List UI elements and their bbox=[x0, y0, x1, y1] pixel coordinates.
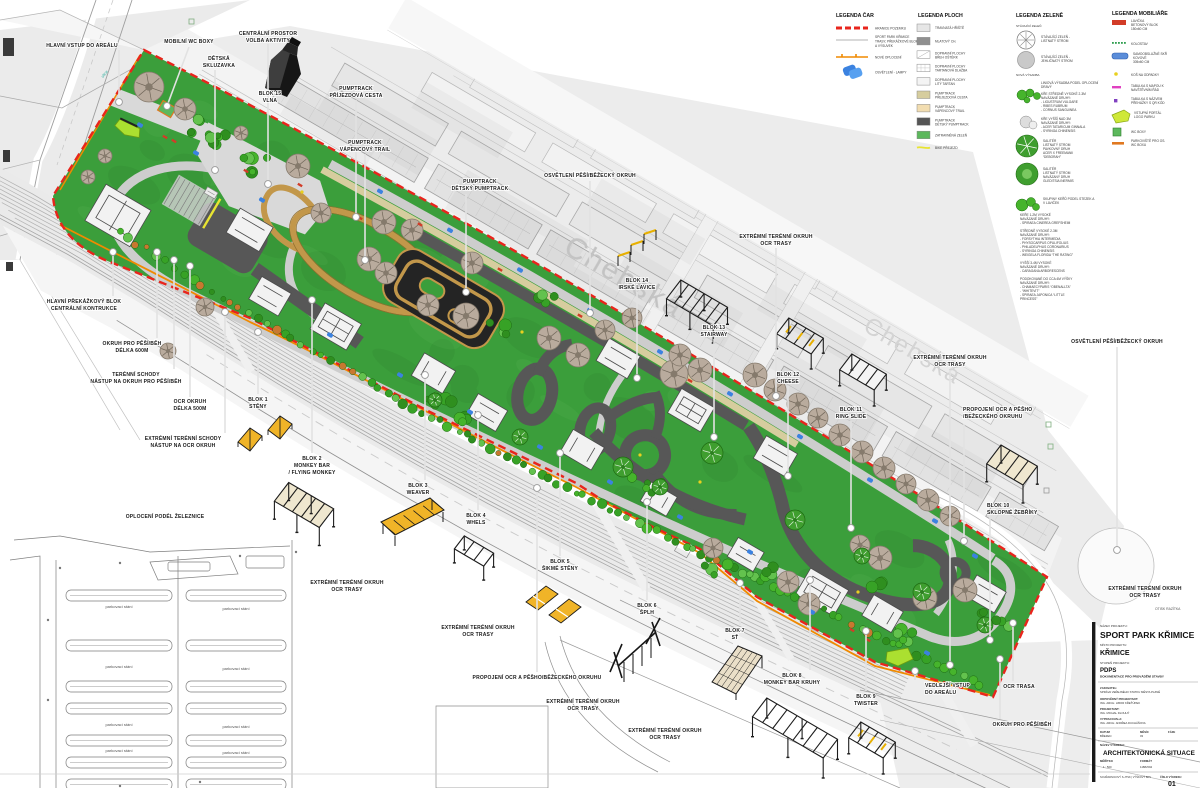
svg-text:BLOK 8: BLOK 8 bbox=[782, 673, 802, 679]
svg-text:SŤ: SŤ bbox=[732, 633, 739, 641]
svg-text:BLOK 11: BLOK 11 bbox=[840, 407, 862, 413]
svg-text:BLOK 1: BLOK 1 bbox=[248, 397, 268, 403]
svg-text:PDPS: PDPS bbox=[1100, 668, 1116, 674]
svg-text:BŘEH OŠTĚRK: BŘEH OŠTĚRK bbox=[935, 54, 959, 59]
svg-text:BLOK 10: BLOK 10 bbox=[987, 503, 1010, 509]
svg-text:MONKEY BAR KRUHY: MONKEY BAR KRUHY bbox=[764, 680, 821, 686]
svg-text:PUMPTRACK: PUMPTRACK bbox=[348, 140, 382, 146]
svg-text:BLOK 15: BLOK 15 bbox=[259, 91, 282, 97]
svg-text:MĚŘÍTKO: MĚŘÍTKO bbox=[1100, 758, 1114, 763]
svg-text:- CORNUS SANGUINEA: - CORNUS SANGUINEA bbox=[1041, 108, 1077, 112]
svg-text:NOVÉ OPLOCENÍ: NOVÉ OPLOCENÍ bbox=[875, 55, 902, 60]
svg-text:STÁVAJÍCÍ ZELEŇ: STÁVAJÍCÍ ZELEŇ bbox=[1016, 23, 1041, 28]
svg-text:BLOK 4: BLOK 4 bbox=[466, 513, 486, 519]
svg-text:NÁZEV VÝKRESU:: NÁZEV VÝKRESU: bbox=[1100, 742, 1125, 747]
svg-text:ING. MICHAL DLOUHÝ: ING. MICHAL DLOUHÝ bbox=[1100, 711, 1130, 715]
svg-text:parkovací stání: parkovací stání bbox=[105, 722, 133, 727]
svg-text:SPRÁVA VEŘEJNÉHO STATKU MĚSTA: SPRÁVA VEŘEJNÉHO STATKU MĚSTA PLZNĚ bbox=[1100, 689, 1160, 694]
svg-text:OSVĚTLENÍ PĚŠÍ/BĚŽECKÝ OKRUH: OSVĚTLENÍ PĚŠÍ/BĚŽECKÝ OKRUH bbox=[1071, 337, 1163, 345]
svg-text:PRINCESS”: PRINCESS” bbox=[1020, 297, 1037, 301]
svg-text:parkovací stání: parkovací stání bbox=[105, 604, 133, 609]
svg-text:OCR TRASY: OCR TRASY bbox=[760, 241, 792, 247]
svg-text:parkovací stání: parkovací stání bbox=[105, 748, 133, 753]
svg-text:EXTRÉMNÍ TERÉNNÍ OKRUH: EXTRÉMNÍ TERÉNNÍ OKRUH bbox=[441, 623, 514, 631]
svg-text:LOGO PARKU: LOGO PARKU bbox=[1134, 115, 1156, 119]
svg-text:OTISK RAZÍTKA: OTISK RAZÍTKA bbox=[1155, 607, 1181, 611]
svg-text:PŘEJEZDOVÁ CESTA: PŘEJEZDOVÁ CESTA bbox=[935, 95, 968, 100]
svg-text:BLOK 14: BLOK 14 bbox=[626, 278, 649, 284]
svg-text:KOLOSTAV: KOLOSTAV bbox=[1131, 42, 1149, 46]
svg-text:EXTRÉMNÍ TERÉNNÍ OKRUH: EXTRÉMNÍ TERÉNNÍ OKRUH bbox=[739, 232, 812, 240]
svg-text:BLOK 2: BLOK 2 bbox=[302, 456, 322, 462]
svg-text:SKLOPNÉ ŽEBŘÍKY: SKLOPNÉ ŽEBŘÍKY bbox=[987, 508, 1038, 516]
svg-text:EXTRÉMNÍ TERÉNNÍ OKRUH: EXTRÉMNÍ TERÉNNÍ OKRUH bbox=[310, 578, 383, 586]
svg-text:- SYRINGA CHINENSIS: - SYRINGA CHINENSIS bbox=[1041, 129, 1075, 133]
svg-text:OPLOCENÍ PODÉL ŽELEZNICE: OPLOCENÍ PODÉL ŽELEZNICE bbox=[126, 512, 205, 520]
svg-text:SPORT PARK KŘIMICE: SPORT PARK KŘIMICE bbox=[875, 34, 909, 39]
svg-text:PŘÍJEZDOVÁ CESTA: PŘÍJEZDOVÁ CESTA bbox=[329, 91, 382, 99]
svg-text:“DEBORAH”: “DEBORAH” bbox=[1043, 155, 1061, 159]
svg-text:PŘEHÁŽKY S QR KÓD: PŘEHÁŽKY S QR KÓD bbox=[1131, 100, 1165, 105]
svg-text:BLOK 7: BLOK 7 bbox=[725, 628, 745, 634]
svg-text:MONKEY BAR: MONKEY BAR bbox=[294, 463, 330, 469]
svg-text:MÍSTO PROJEKTU:: MÍSTO PROJEKTU: bbox=[1100, 643, 1127, 647]
svg-text:EXTRÉMNÍ TERÉNNÍ OKRUH: EXTRÉMNÍ TERÉNNÍ OKRUH bbox=[546, 697, 619, 705]
svg-text:DĚTSKÁ: DĚTSKÁ bbox=[208, 54, 230, 62]
svg-text:parkovací stání: parkovací stání bbox=[222, 750, 250, 755]
svg-text:OCR TRASY: OCR TRASY bbox=[1129, 593, 1161, 599]
svg-text:PROPOJENÍ OCR A PĚŠHO/BĚŽECKÉH: PROPOJENÍ OCR A PĚŠHO/BĚŽECKÉHO OKRUHU bbox=[473, 673, 602, 681]
svg-text:ING. ARCH. ANDŘEA DUCHÁŇOVA: ING. ARCH. ANDŘEA DUCHÁŇOVA bbox=[1100, 720, 1146, 725]
svg-text:OCR TRASY: OCR TRASY bbox=[934, 362, 966, 368]
svg-text:BŘEZEN: BŘEZEN bbox=[1100, 733, 1111, 738]
svg-text:OCR TRASY: OCR TRASY bbox=[567, 706, 599, 712]
svg-text:BLOK 5: BLOK 5 bbox=[550, 559, 570, 565]
svg-text:1188x594: 1188x594 bbox=[1140, 765, 1153, 769]
svg-text:KOŠ NA ODPADKY: KOŠ NA ODPADKY bbox=[1131, 72, 1160, 77]
svg-text:TRAVNATÁ HŘIŠTĚ: TRAVNATÁ HŘIŠTĚ bbox=[935, 25, 964, 30]
svg-text:VÁPENCOVÝ TRAIL: VÁPENCOVÝ TRAIL bbox=[935, 109, 965, 113]
svg-text:NAVŠTĚVNÍM ŘÁD: NAVŠTĚVNÍM ŘÁD bbox=[1131, 87, 1160, 92]
svg-text:MOBILNÍ WC BOXY: MOBILNÍ WC BOXY bbox=[164, 37, 214, 45]
svg-text:CENTRÁLNÍ KONTRUKCE: CENTRÁLNÍ KONTRUKCE bbox=[51, 304, 117, 312]
svg-text:ZATRAVNĚNÁ ZELEŇ: ZATRAVNĚNÁ ZELEŇ bbox=[935, 132, 968, 137]
svg-text:FORMÁT: FORMÁT bbox=[1140, 758, 1152, 763]
svg-text:CENTRÁLNÍ PROSTOR: CENTRÁLNÍ PROSTOR bbox=[239, 29, 297, 37]
svg-text:DO AREÁLU: DO AREÁLU bbox=[925, 689, 957, 696]
svg-text:VOLBA AKTIVITY: VOLBA AKTIVITY bbox=[246, 38, 291, 44]
svg-text:CHEESE: CHEESE bbox=[777, 379, 799, 385]
svg-text:PUMPTRACK: PUMPTRACK bbox=[463, 179, 497, 185]
svg-text:DRAVÝ: DRAVÝ bbox=[1041, 85, 1053, 89]
svg-text:PROPOJENÍ OCR A PĚŠHO: PROPOJENÍ OCR A PĚŠHO bbox=[963, 405, 1032, 413]
svg-text:V LAVIČEK: V LAVIČEK bbox=[1043, 200, 1060, 205]
svg-text:NÁSTUP NA OCR OKRUH: NÁSTUP NA OCR OKRUH bbox=[151, 442, 216, 449]
svg-text:ING. ARCH. LIBOR KŘEŤÚPEK: ING. ARCH. LIBOR KŘEŤÚPEK bbox=[1100, 700, 1140, 705]
svg-text:PUMPTRACK: PUMPTRACK bbox=[339, 86, 373, 92]
svg-text:NÁZEV PROJEKTU:: NÁZEV PROJEKTU: bbox=[1100, 624, 1128, 628]
svg-text:NOVÁ VÝSADBA: NOVÁ VÝSADBA bbox=[1016, 73, 1040, 77]
svg-text:STĚNY: STĚNY bbox=[249, 402, 267, 410]
svg-text:/ FLYING MONKEY: / FLYING MONKEY bbox=[289, 470, 336, 476]
svg-text:305x60 CM: 305x60 CM bbox=[1133, 60, 1150, 64]
svg-text:MLATOVÝ CH.: MLATOVÝ CH. bbox=[935, 40, 956, 44]
svg-text:WC BOXU: WC BOXU bbox=[1131, 143, 1147, 147]
svg-text:150x60 CM: 150x60 CM bbox=[1131, 27, 1148, 31]
svg-text:TRASY, PŘEKÁŽKOVÉ BLOKY: TRASY, PŘEKÁŽKOVÉ BLOKY bbox=[875, 39, 921, 44]
svg-text:LEGENDA ZELENĚ: LEGENDA ZELENĚ bbox=[1016, 11, 1064, 19]
svg-text:DOKUMENTACE PRO PROVÁDĚNÍ STAV: DOKUMENTACE PRO PROVÁDĚNÍ STAVBY bbox=[1100, 674, 1165, 679]
svg-text:OKRUH PRO PĚŠÍ/BĚH: OKRUH PRO PĚŠÍ/BĚH bbox=[103, 339, 162, 347]
svg-text:BLOK 12: BLOK 12 bbox=[777, 372, 800, 378]
svg-text:OCR TRASY: OCR TRASY bbox=[331, 587, 363, 593]
svg-text:DĚTSKÝ PUMPTRACK: DĚTSKÝ PUMPTRACK bbox=[935, 121, 970, 126]
svg-text:TARTANOVÁ DLAŽBA: TARTANOVÁ DLAŽBA bbox=[935, 68, 968, 73]
svg-text:TERÉNNÍ SCHODY: TERÉNNÍ SCHODY bbox=[112, 370, 160, 378]
svg-text:parkovací stání: parkovací stání bbox=[222, 666, 250, 671]
svg-text:VLNA: VLNA bbox=[263, 98, 278, 104]
svg-text:HLAVNÍ PŘEKÁŽKOVÝ BLOK: HLAVNÍ PŘEKÁŽKOVÝ BLOK bbox=[47, 297, 121, 305]
svg-text:VÁPENCOVÝ TRAIL: VÁPENCOVÝ TRAIL bbox=[340, 146, 391, 153]
svg-text:WEAVER: WEAVER bbox=[407, 490, 430, 496]
svg-text:EXTRÉMNÍ TERÉNNÍ OKRUH: EXTRÉMNÍ TERÉNNÍ OKRUH bbox=[628, 726, 701, 734]
svg-text:WC BOXY: WC BOXY bbox=[1131, 130, 1147, 134]
svg-text:LISTNATÝ STROM: LISTNATÝ STROM bbox=[1041, 39, 1069, 43]
svg-text:DĚTSKÝ PUMPTRACK: DĚTSKÝ PUMPTRACK bbox=[452, 184, 509, 192]
svg-text:STAIRWAY: STAIRWAY bbox=[700, 332, 728, 338]
svg-text:parkovací stání: parkovací stání bbox=[222, 724, 250, 729]
svg-text:NÁSTUP NA OKRUH PRO PĚŠÍ/BĚH: NÁSTUP NA OKRUH PRO PĚŠÍ/BĚH bbox=[90, 377, 181, 385]
svg-text:1 : 500: 1 : 500 bbox=[1103, 765, 1112, 769]
svg-text:OCR TRASY: OCR TRASY bbox=[649, 735, 681, 741]
svg-text:parkovací stání: parkovací stání bbox=[105, 664, 133, 669]
svg-text:HRANICE POZEMKU: HRANICE POZEMKU bbox=[875, 27, 907, 31]
svg-text:EXTRÉMNÍ TERÉNNÍ SCHODY: EXTRÉMNÍ TERÉNNÍ SCHODY bbox=[145, 434, 222, 442]
svg-text:SPORT PARK KŘIMICE: SPORT PARK KŘIMICE bbox=[1100, 629, 1195, 640]
svg-text:- SPIRAEA CINEREA GREFSHEIM: - SPIRAEA CINEREA GREFSHEIM bbox=[1020, 221, 1071, 225]
svg-text:TWISTER: TWISTER bbox=[854, 701, 878, 707]
svg-text:LEGENDA PLOCH: LEGENDA PLOCH bbox=[918, 13, 963, 19]
svg-text:SKLUZAVKA: SKLUZAVKA bbox=[203, 63, 235, 69]
svg-text:EXTRÉMNÍ TERÉNNÍ OKRUH: EXTRÉMNÍ TERÉNNÍ OKRUH bbox=[1108, 584, 1181, 592]
svg-text:OCR TRASY: OCR TRASY bbox=[462, 632, 494, 638]
svg-text:OSVĚTLENÍ - LAMPY: OSVĚTLENÍ - LAMPY bbox=[875, 70, 907, 75]
svg-text:GLEDITSIA INERMIS: GLEDITSIA INERMIS bbox=[1043, 179, 1074, 183]
svg-text:ARCHITEKTONICKÁ SITUACE: ARCHITEKTONICKÁ SITUACE bbox=[1103, 748, 1196, 757]
svg-text:OKRUH PRO PĚŠÍ/BĚH: OKRUH PRO PĚŠÍ/BĚH bbox=[993, 720, 1052, 728]
svg-text:RING SLIDE: RING SLIDE bbox=[836, 414, 867, 420]
svg-text:WHELS: WHELS bbox=[466, 520, 486, 526]
svg-text:DÉLKA 500M: DÉLKA 500M bbox=[174, 404, 207, 412]
svg-text:KŘIMICE: KŘIMICE bbox=[1100, 648, 1130, 657]
svg-text:HLAVNÍ VSTUP DO AREÁLU: HLAVNÍ VSTUP DO AREÁLU bbox=[46, 41, 118, 49]
svg-text:03: 03 bbox=[1140, 734, 1144, 738]
svg-text:OSVĚTLENÍ PĚŠÍ/BĚŽECKÝ OKRUH: OSVĚTLENÍ PĚŠÍ/BĚŽECKÝ OKRUH bbox=[544, 171, 636, 179]
svg-text:BLOK 6: BLOK 6 bbox=[637, 603, 657, 609]
svg-text:VEDLEJŠÍ VSTUP: VEDLEJŠÍ VSTUP bbox=[925, 681, 970, 689]
svg-text:JEHLIČNATÝ STROM: JEHLIČNATÝ STROM bbox=[1041, 58, 1073, 63]
svg-text:IRSKÉ LAVICE: IRSKÉ LAVICE bbox=[618, 283, 655, 291]
svg-text:STUPEŇ PROJEKTU:: STUPEŇ PROJEKTU: bbox=[1100, 660, 1130, 665]
svg-text:LEGENDA MOBILIÁŘE: LEGENDA MOBILIÁŘE bbox=[1112, 9, 1168, 17]
svg-text:- CARAGANA ARBORESCENS: - CARAGANA ARBORESCENS bbox=[1020, 269, 1065, 273]
svg-text:A VÝSUVEK: A VÝSUVEK bbox=[875, 44, 894, 48]
svg-text:EXTRÉMNÍ TERÉNNÍ OKRUH: EXTRÉMNÍ TERÉNNÍ OKRUH bbox=[913, 353, 986, 361]
svg-text:BIKE PŘEJEZD: BIKE PŘEJEZD bbox=[935, 145, 958, 150]
svg-text:OCR OKRUH: OCR OKRUH bbox=[174, 399, 207, 405]
svg-text:ŠPLH: ŠPLH bbox=[640, 608, 654, 616]
svg-text:LEGENDA ČAR: LEGENDA ČAR bbox=[836, 12, 874, 19]
svg-text:BLOK 3: BLOK 3 bbox=[408, 483, 428, 489]
svg-text:01: 01 bbox=[1168, 781, 1176, 788]
svg-text:ŠIKMÉ STĚNY: ŠIKMÉ STĚNY bbox=[542, 564, 579, 572]
svg-text:DÉLKA 600M: DÉLKA 600M bbox=[116, 346, 149, 354]
svg-text:- WEIGELA FLORIDA “THE RATING”: - WEIGELA FLORIDA “THE RATING” bbox=[1020, 253, 1073, 257]
svg-text:LITÝ TARTAN: LITÝ TARTAN bbox=[935, 82, 955, 86]
svg-text:parkovací stání: parkovací stání bbox=[222, 606, 250, 611]
svg-text:OCR TRASA: OCR TRASA bbox=[1003, 684, 1035, 690]
svg-text:BLOK 13: BLOK 13 bbox=[703, 325, 726, 331]
svg-text:FÁZE: FÁZE bbox=[1168, 729, 1175, 734]
svg-text:BLOK 9: BLOK 9 bbox=[856, 694, 876, 700]
svg-text:/BEŽECKÉHO OKRUHU: /BEŽECKÉHO OKRUHU bbox=[963, 412, 1023, 420]
